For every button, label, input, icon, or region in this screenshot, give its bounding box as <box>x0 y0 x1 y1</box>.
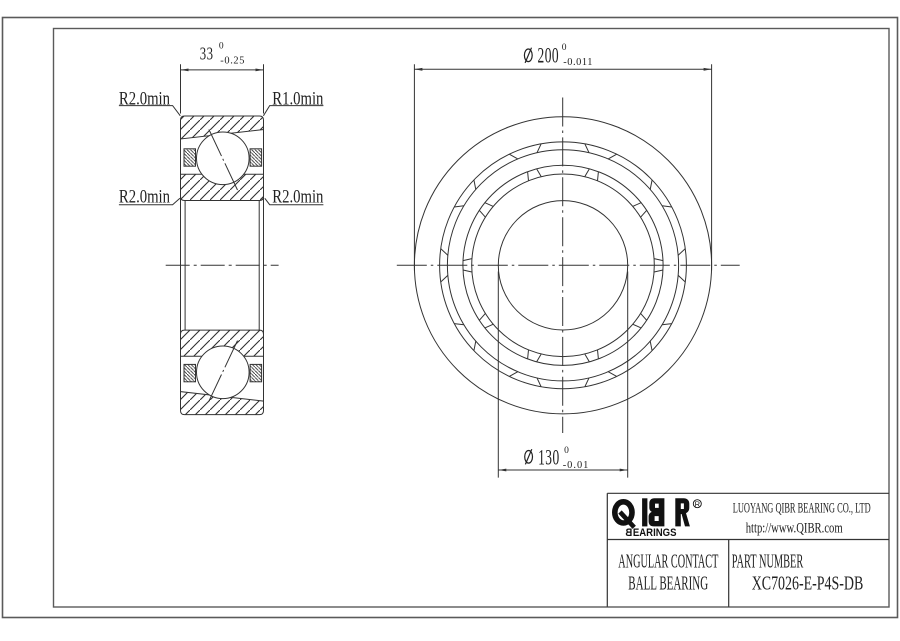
svg-text:BALL BEARING: BALL BEARING <box>628 573 708 594</box>
svg-text:PART NUMBER: PART NUMBER <box>732 551 804 572</box>
svg-text:R1.0min: R1.0min <box>272 87 323 108</box>
svg-text:-0.01: -0.01 <box>563 460 590 471</box>
svg-text:http://www.QIBR.com: http://www.QIBR.com <box>746 520 843 536</box>
svg-text:R2.0min: R2.0min <box>272 186 323 207</box>
svg-text:ANGULAR CONTACT: ANGULAR CONTACT <box>618 551 718 572</box>
svg-text:R: R <box>695 499 701 508</box>
svg-text:EARINGS: EARINGS <box>633 528 677 540</box>
svg-text:0: 0 <box>564 446 569 456</box>
svg-text:-0.011: -0.011 <box>563 57 593 68</box>
svg-text:LUOYANG QIBR BEARING CO., LTD: LUOYANG QIBR BEARING CO., LTD <box>733 499 871 516</box>
svg-text:R2.0min: R2.0min <box>119 87 170 108</box>
svg-text:-0.25: -0.25 <box>220 55 245 66</box>
svg-text:200: 200 <box>538 43 560 67</box>
svg-text:130: 130 <box>538 445 560 469</box>
svg-text:XC7026-E-P4S-DB: XC7026-E-P4S-DB <box>752 572 864 594</box>
svg-text:R2.0min: R2.0min <box>119 186 170 207</box>
svg-text:33: 33 <box>200 45 214 65</box>
svg-text:0: 0 <box>562 43 567 53</box>
svg-text:B: B <box>625 528 632 540</box>
svg-text:0: 0 <box>219 42 224 52</box>
